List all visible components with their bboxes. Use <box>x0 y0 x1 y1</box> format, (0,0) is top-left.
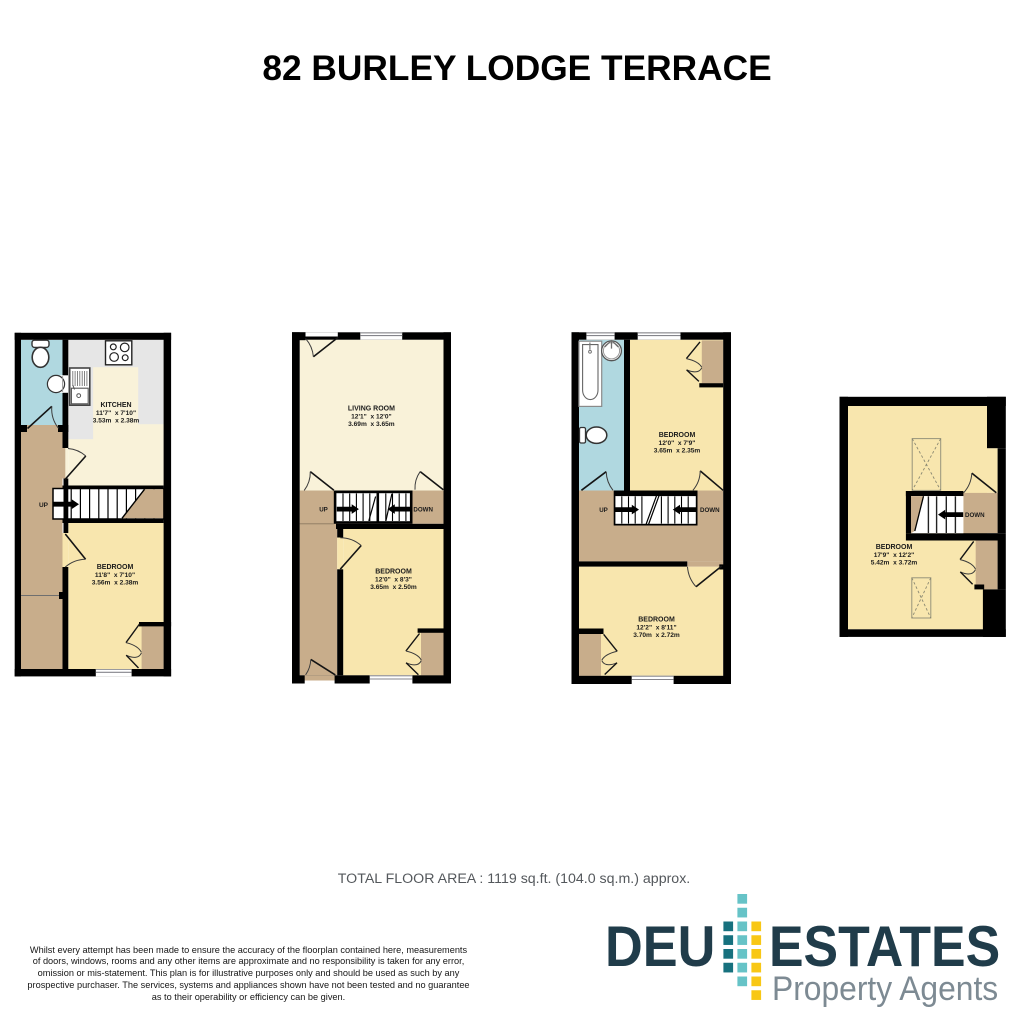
svg-text:3.70m x 2.72m: 3.70m x 2.72m <box>633 632 680 639</box>
svg-text:12'0" x 7'9": 12'0" x 7'9" <box>659 440 696 447</box>
svg-text:12'0" x 8'3": 12'0" x 8'3" <box>375 576 412 583</box>
svg-text:11'7" x 7'10": 11'7" x 7'10" <box>96 410 136 417</box>
svg-text:DOWN: DOWN <box>700 507 720 514</box>
svg-text:11'8" x 7'10": 11'8" x 7'10" <box>95 572 135 579</box>
svg-text:12'2" x 8'11": 12'2" x 8'11" <box>636 624 676 631</box>
svg-text:LIVING ROOM: LIVING ROOM <box>348 406 395 413</box>
svg-text:BEDROOM: BEDROOM <box>97 564 134 571</box>
svg-text:KITCHEN: KITCHEN <box>100 402 131 409</box>
svg-text:17'9" x 12'2": 17'9" x 12'2" <box>874 552 915 559</box>
svg-text:3.65m x 2.35m: 3.65m x 2.35m <box>654 447 701 454</box>
svg-text:UP: UP <box>319 507 328 514</box>
svg-text:UP: UP <box>39 502 49 509</box>
svg-text:DOWN: DOWN <box>413 507 433 514</box>
svg-text:DOWN: DOWN <box>965 512 985 519</box>
svg-text:3.69m x 3.65m: 3.69m x 3.65m <box>348 421 395 428</box>
svg-text:3.65m x 2.50m: 3.65m x 2.50m <box>370 584 417 591</box>
svg-text:BEDROOM: BEDROOM <box>876 544 913 551</box>
svg-text:5.42m x 3.72m: 5.42m x 3.72m <box>871 559 918 566</box>
svg-text:BEDROOM: BEDROOM <box>659 432 696 439</box>
svg-text:BEDROOM: BEDROOM <box>375 569 412 576</box>
svg-text:12'1" x 12'0": 12'1" x 12'0" <box>351 413 392 420</box>
svg-text:BEDROOM: BEDROOM <box>638 617 675 624</box>
svg-text:3.56m x 2.38m: 3.56m x 2.38m <box>92 579 139 586</box>
svg-text:UP: UP <box>599 507 608 514</box>
svg-text:3.53m x 2.38m: 3.53m x 2.38m <box>93 417 140 424</box>
